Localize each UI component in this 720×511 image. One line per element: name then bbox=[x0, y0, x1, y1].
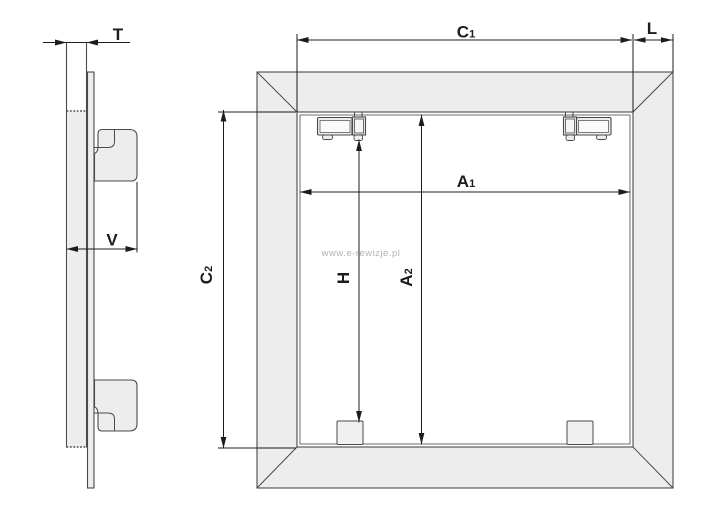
dim-label-c2: C2 bbox=[197, 266, 216, 284]
arrowhead bbox=[87, 40, 99, 46]
watermark-text: www.e-rewizje.pl bbox=[321, 248, 401, 259]
hinge-tab-left bbox=[337, 421, 363, 445]
latch-side-bottom bbox=[95, 380, 138, 431]
dimension-L: L bbox=[634, 19, 673, 72]
wall-section bbox=[67, 112, 86, 448]
dimension-drawing: T V bbox=[0, 0, 720, 511]
dim-label-c1: C1 bbox=[457, 23, 475, 42]
arrowhead bbox=[634, 37, 646, 43]
arrowhead bbox=[55, 40, 67, 46]
arrowhead bbox=[221, 437, 227, 449]
arrowhead bbox=[621, 37, 633, 43]
frame-flange-plate bbox=[88, 72, 95, 488]
dimension-T: T bbox=[43, 25, 130, 46]
technical-drawing-page: T V bbox=[0, 0, 720, 511]
front-view: C1 L A1 C2 bbox=[197, 19, 673, 488]
arrowhead bbox=[661, 37, 673, 43]
side-view: T V bbox=[43, 25, 137, 488]
dim-label-l: L bbox=[647, 19, 657, 38]
arrowhead bbox=[297, 37, 309, 43]
latch-side-top bbox=[95, 130, 138, 182]
arrowhead bbox=[126, 246, 138, 252]
dim-label-t: T bbox=[113, 25, 124, 44]
hinge-tab-right bbox=[567, 421, 593, 445]
dim-label-v: V bbox=[106, 231, 118, 250]
dim-label-h: H bbox=[334, 272, 353, 284]
